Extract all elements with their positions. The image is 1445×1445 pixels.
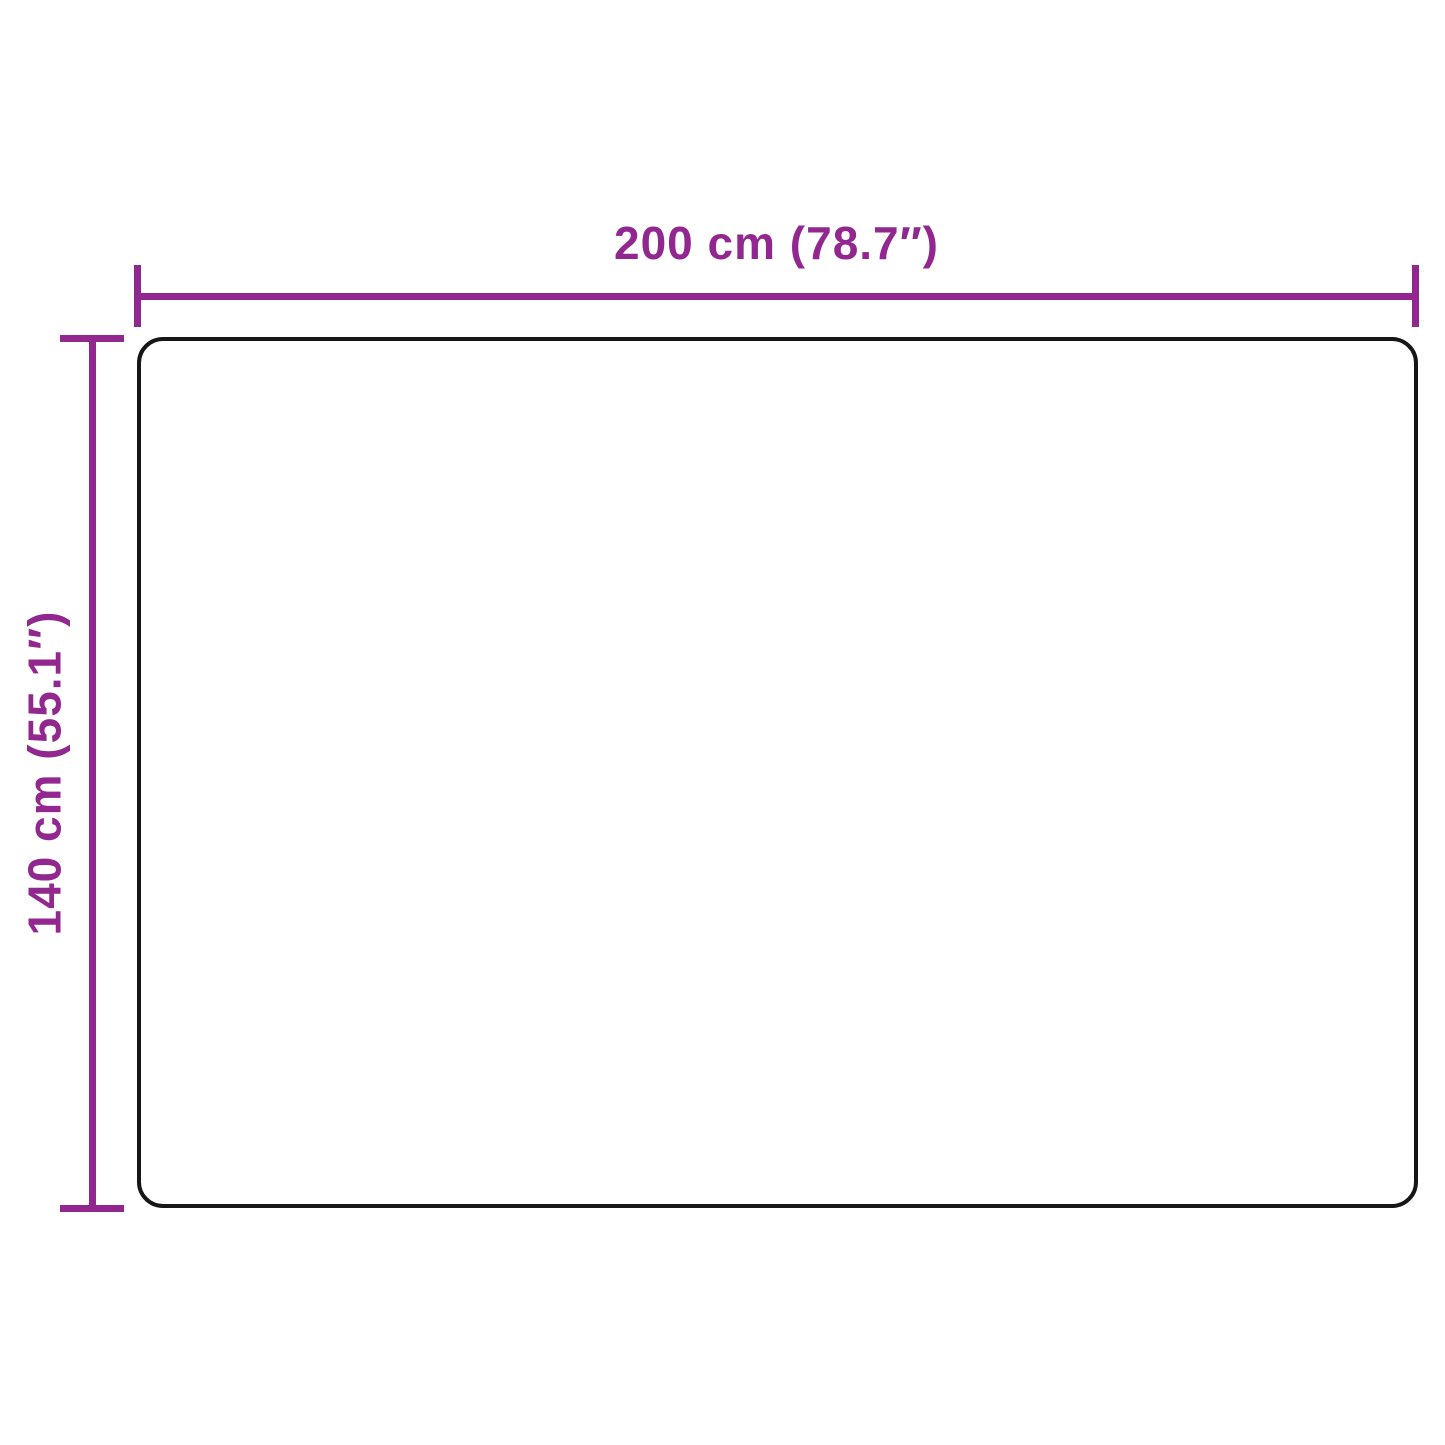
- width-dimension-label: 200 cm (78.7″): [137, 212, 1416, 274]
- height-dimension-line: [89, 338, 96, 1209]
- width-dimension-line: [137, 293, 1416, 300]
- height-dimension-label: 140 cm (55.1″): [13, 338, 77, 1209]
- dimension-diagram: 200 cm (78.7″) 140 cm (55.1″): [0, 0, 1445, 1445]
- height-dimension-end-tick-bottom: [60, 1205, 124, 1212]
- height-dimension-end-tick-top: [60, 335, 124, 342]
- width-dimension-end-tick-right: [1412, 265, 1419, 327]
- product-outline-rectangle: [137, 337, 1418, 1208]
- width-dimension-end-tick-left: [134, 265, 141, 327]
